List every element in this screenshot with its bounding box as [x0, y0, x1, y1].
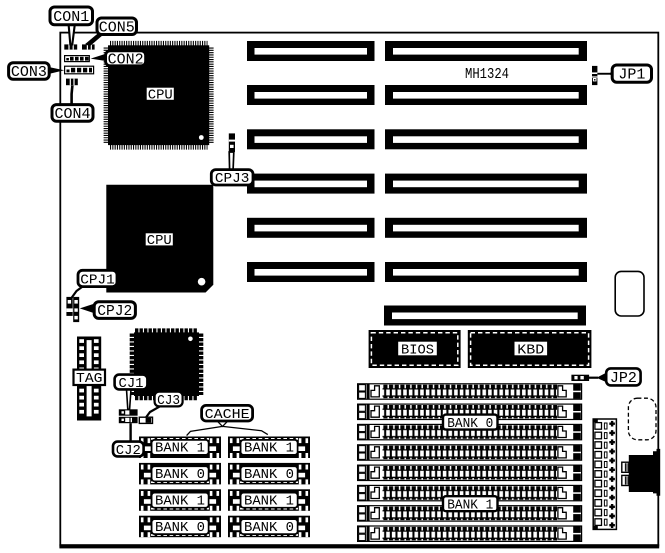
svg-text:CPJ3: CPJ3 — [215, 171, 250, 187]
svg-text:TAG: TAG — [76, 372, 103, 387]
svg-text:BANK 0: BANK 0 — [244, 520, 294, 536]
svg-text:CON1: CON1 — [53, 10, 89, 26]
svg-text:BANK 0: BANK 0 — [244, 467, 294, 483]
svg-text:CPJ1: CPJ1 — [80, 272, 115, 288]
svg-text:CJ3: CJ3 — [157, 393, 180, 409]
svg-text:CJ1: CJ1 — [119, 376, 144, 392]
svg-text:CON5: CON5 — [99, 20, 135, 36]
svg-text:CON3: CON3 — [11, 65, 47, 81]
svg-text:BANK 0: BANK 0 — [155, 520, 205, 536]
svg-text:BANK 1: BANK 1 — [447, 498, 493, 514]
svg-text:MH1324: MH1324 — [465, 67, 509, 83]
svg-text:BANK 0: BANK 0 — [447, 416, 493, 432]
svg-text:BANK 1: BANK 1 — [155, 493, 205, 509]
svg-text:BANK 1: BANK 1 — [155, 441, 205, 457]
svg-text:BANK 1: BANK 1 — [244, 441, 294, 457]
svg-text:CACHE: CACHE — [205, 407, 250, 423]
svg-text:CON2: CON2 — [108, 52, 144, 68]
svg-text:CPU: CPU — [148, 89, 173, 104]
svg-text:KBD: KBD — [517, 342, 544, 358]
svg-text:BIOS: BIOS — [401, 342, 434, 358]
svg-text:JP1: JP1 — [618, 68, 645, 84]
svg-text:CPJ2: CPJ2 — [97, 304, 132, 320]
svg-text:BANK 1: BANK 1 — [244, 493, 294, 509]
svg-text:CJ2: CJ2 — [116, 443, 141, 459]
svg-text:BANK 0: BANK 0 — [155, 467, 205, 483]
svg-text:CPU: CPU — [147, 234, 172, 249]
svg-text:CON4: CON4 — [55, 107, 91, 123]
svg-text:JP2: JP2 — [610, 371, 637, 387]
